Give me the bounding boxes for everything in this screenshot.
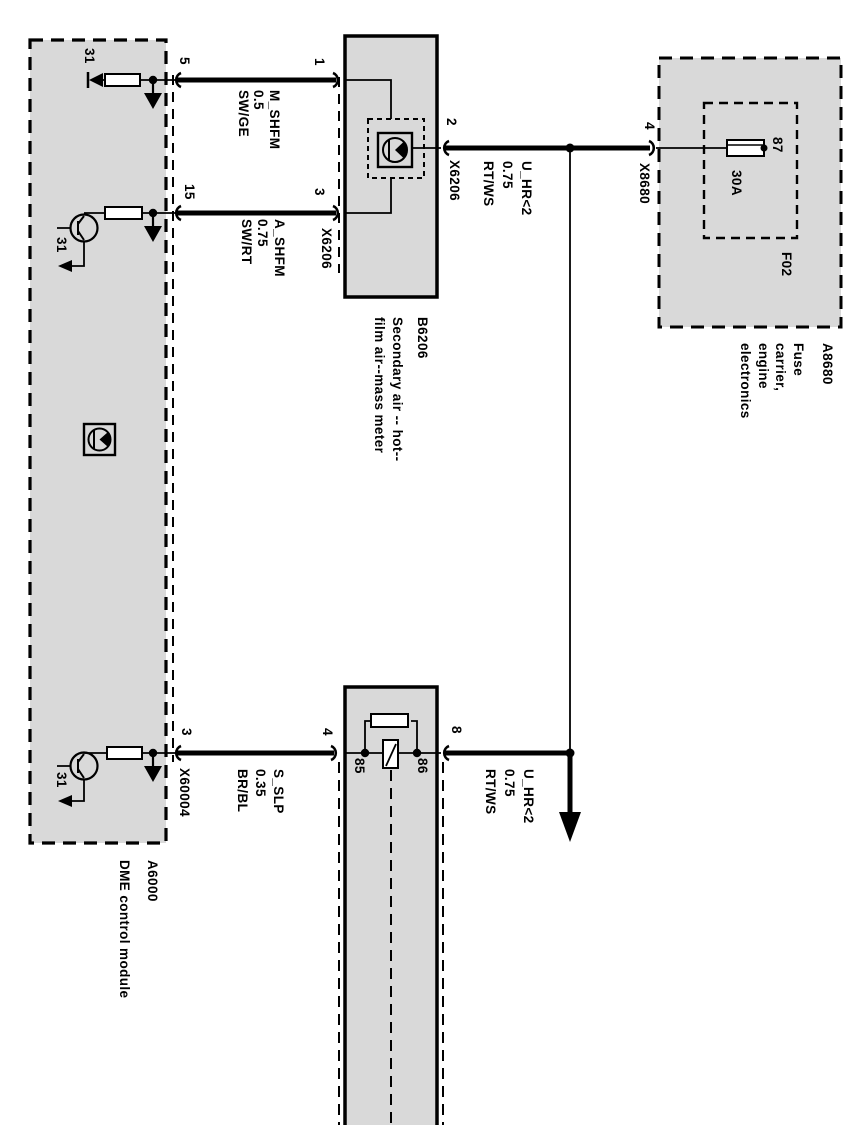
pin-label-relay-85: 85 [352,758,367,774]
wire-continuation-arrow [559,812,581,842]
pin-label-relay-4: 4 [320,728,335,736]
module-code-b6206: B6206 [415,317,430,359]
pin-label-fuse-87: 87 [770,137,785,153]
resistor-symbol [107,747,142,759]
connector-label-x60004: X60004 [177,768,192,817]
ground-label-31-mid: 31 [54,237,69,253]
connector-label-x8680: X8680 [637,163,652,204]
pin-label-relay-86: 86 [415,758,430,774]
module-name-a8680: Fuse carrier, engine electronics [737,343,807,419]
pin-label-dme-15: 15 [182,184,197,200]
dme-module-box [30,40,166,843]
module-code-a6000: A6000 [145,860,160,902]
ground-label-31-bottom: 31 [54,772,69,788]
pin-label-dme-3: 3 [179,728,194,736]
relay-coil-symbol [371,714,408,727]
wire-label-u-hr-bottom: U_HR<2 0.75 RT/WS [481,769,538,824]
fuse-symbol [727,140,764,156]
pin-label-hfm-3: 3 [312,188,327,196]
module-name-b6206: Secondary air -- hot-- film air--mass me… [370,317,406,462]
fuse-slot-label: F02 [779,252,794,276]
module-name-a6000: DME control module [117,860,132,998]
pin-label-dme-5: 5 [177,57,192,65]
resistor-symbol [105,207,142,219]
connector-label-x6206-a: X6206 [319,228,334,269]
pin-label-hfm-2: 2 [444,118,459,126]
fuse-carrier-box [659,58,841,327]
wire-label-u-hr-top: U_HR<2 0.75 RT/WS [479,161,536,216]
module-code-a8680: A8680 [820,343,835,385]
resistor-symbol [105,74,140,86]
wire-label-m-shfm: M_SHFM 0.5 SW/GE [236,90,283,149]
wire-label-a-shfm: A_SHFM 0.75 SW/RT [238,219,288,277]
ground-label-31-top: 31 [82,48,97,64]
wire-label-s-slp: S_SLP 0.35 BR/BL [233,769,287,814]
fuse-rating-label: 30A [729,170,744,196]
pin-label-relay-8: 8 [449,726,464,734]
pin-label-hfm-1: 1 [312,58,327,66]
connector-label-x6206-b: X6206 [447,160,462,201]
wiring-diagram: 5 1 15 3 X6206 2 X6206 4 X8680 87 30A F0… [0,0,855,1125]
pin-label-fuse-4: 4 [642,122,657,130]
